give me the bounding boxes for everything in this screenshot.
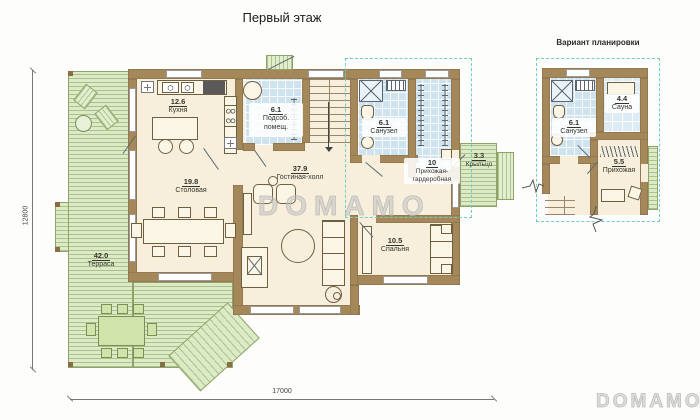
terrace-chair (133, 348, 144, 358)
bar-stool (179, 139, 194, 154)
room-name: Сауна (605, 104, 639, 112)
room-area: 37.9 (291, 164, 310, 174)
window (383, 276, 428, 284)
room-area: 42.0 (92, 251, 111, 261)
terrace-post (55, 202, 60, 207)
variant-label-bathroom: 6.1 Санузел (552, 118, 596, 137)
dimension-tick (30, 67, 36, 73)
window (250, 306, 294, 314)
room-name: Кухня (155, 107, 201, 115)
porch-steps (497, 152, 514, 200)
chair (178, 207, 191, 218)
terrace-chair (101, 304, 112, 314)
room-area: 10 (426, 158, 438, 168)
window (129, 88, 136, 132)
porch-diagonal-line (268, 56, 294, 70)
bar-stool (158, 139, 173, 154)
chair (131, 223, 142, 238)
back-porch (266, 55, 293, 70)
room-name: Столовая (166, 187, 216, 195)
decor-plant-small (333, 292, 341, 300)
kitchen-hob (203, 81, 225, 94)
room-name: Гостиная-холл (268, 174, 332, 182)
round-rug (281, 229, 315, 263)
variant-label-sauna: 4.4 Сауна (605, 94, 639, 113)
nightstand (441, 264, 452, 274)
terrace-chair (86, 323, 96, 336)
room-label-terrace: 42.0 Терраса (78, 251, 124, 270)
room-name: Прихожая (597, 167, 641, 175)
break-line-icon (588, 206, 604, 232)
watermark-corner: DOMAMO (596, 391, 700, 413)
room-name: Прихожая-гардеробная (404, 168, 460, 184)
window (129, 214, 136, 262)
room-area: 10.5 (386, 236, 405, 246)
tv-cabinet (243, 193, 252, 235)
terrace-side-steps (55, 202, 69, 252)
terrace-round-table (75, 115, 92, 132)
window (299, 306, 341, 314)
window (308, 70, 344, 78)
kitchen-island (152, 117, 198, 140)
window (129, 150, 136, 200)
watermark-center: DOMAMO (258, 190, 431, 222)
room-area: 19.8 (182, 177, 201, 187)
dimension-label-vertical: 12800 (23, 198, 30, 234)
chair (204, 246, 217, 257)
stair-arrow-icon (325, 147, 333, 152)
window (166, 70, 202, 78)
room-label-dining: 19.8 Столовая (166, 177, 216, 196)
room-name: Санузел (552, 128, 596, 136)
terrace-chair (147, 323, 157, 336)
room-area: 6.1 (269, 105, 283, 115)
room-label-porch: 3.3 Крыльцо (461, 151, 497, 169)
boiler-icon (243, 81, 262, 100)
room-label-bedroom: 10.5 Спальня (372, 236, 418, 255)
room-area: 5.5 (612, 157, 626, 167)
room-area: 3.3 (472, 151, 486, 161)
room-label-wardrobe: 10 Прихожая-гардеробная (404, 158, 460, 184)
stair-direction-line (328, 102, 329, 148)
room-area: 6.1 (567, 118, 581, 128)
terrace-post (160, 362, 165, 367)
wall-bedroom-left (350, 215, 358, 285)
wall-step (350, 285, 359, 315)
room-name: Крыльцо (461, 161, 497, 169)
dimension-tick (30, 366, 36, 372)
break-line-icon (522, 178, 544, 194)
dimension-line-horizontal (70, 399, 494, 400)
fixture-icon (224, 137, 237, 149)
dimension-line-vertical (32, 70, 33, 370)
staircase (310, 79, 350, 143)
page-title: Первый этаж (197, 10, 367, 25)
room-area: 6.1 (377, 118, 391, 128)
highlight-box-variant (536, 58, 660, 222)
variant-label-hallway: 5.5 Прихожая (597, 157, 641, 176)
terrace-chair (101, 348, 112, 358)
terrace-post (55, 247, 60, 252)
window (158, 273, 212, 281)
terrace-dining-table (98, 316, 145, 346)
terrace-post (68, 362, 73, 367)
kitchen-sink (162, 82, 179, 93)
sofa (322, 220, 345, 286)
room-label-utility: 6.1 Подсоб. помещ. (254, 105, 298, 132)
room-name: Спальня (372, 246, 418, 254)
chair (225, 223, 236, 238)
nightstand (441, 224, 452, 234)
chair (178, 246, 191, 257)
room-label-kitchen: 12.6 Кухня (155, 97, 201, 116)
floor-plan-canvas: Первый этаж Вариант планировки (0, 0, 700, 420)
dimension-label-horizontal: 17000 (252, 388, 312, 395)
terrace-chair (117, 348, 128, 358)
kitchen-sink (181, 82, 194, 93)
chair (152, 207, 165, 218)
room-name: Санузел (362, 128, 406, 136)
room-area: 12.6 (169, 97, 188, 107)
terrace-post (68, 71, 73, 76)
stove-icon (224, 105, 237, 127)
chair (152, 246, 165, 257)
room-area: 4.4 (615, 94, 629, 104)
dining-table (143, 219, 224, 244)
wall-hall-top-b (273, 143, 305, 151)
variant-title: Вариант планировки (550, 38, 646, 47)
fireplace (241, 247, 268, 288)
wall-utility-right (302, 79, 310, 143)
room-label-living: 37.9 Гостиная-холл (268, 164, 332, 183)
terrace-post (227, 362, 232, 367)
fixture-icon (141, 81, 154, 93)
terrace-chair (133, 304, 144, 314)
room-name: Терраса (78, 261, 124, 269)
room-name: Подсоб. помещ. (254, 115, 298, 132)
chair (204, 207, 217, 218)
terrace-chair (117, 304, 128, 314)
room-label-bathroom: 6.1 Санузел (362, 118, 406, 137)
